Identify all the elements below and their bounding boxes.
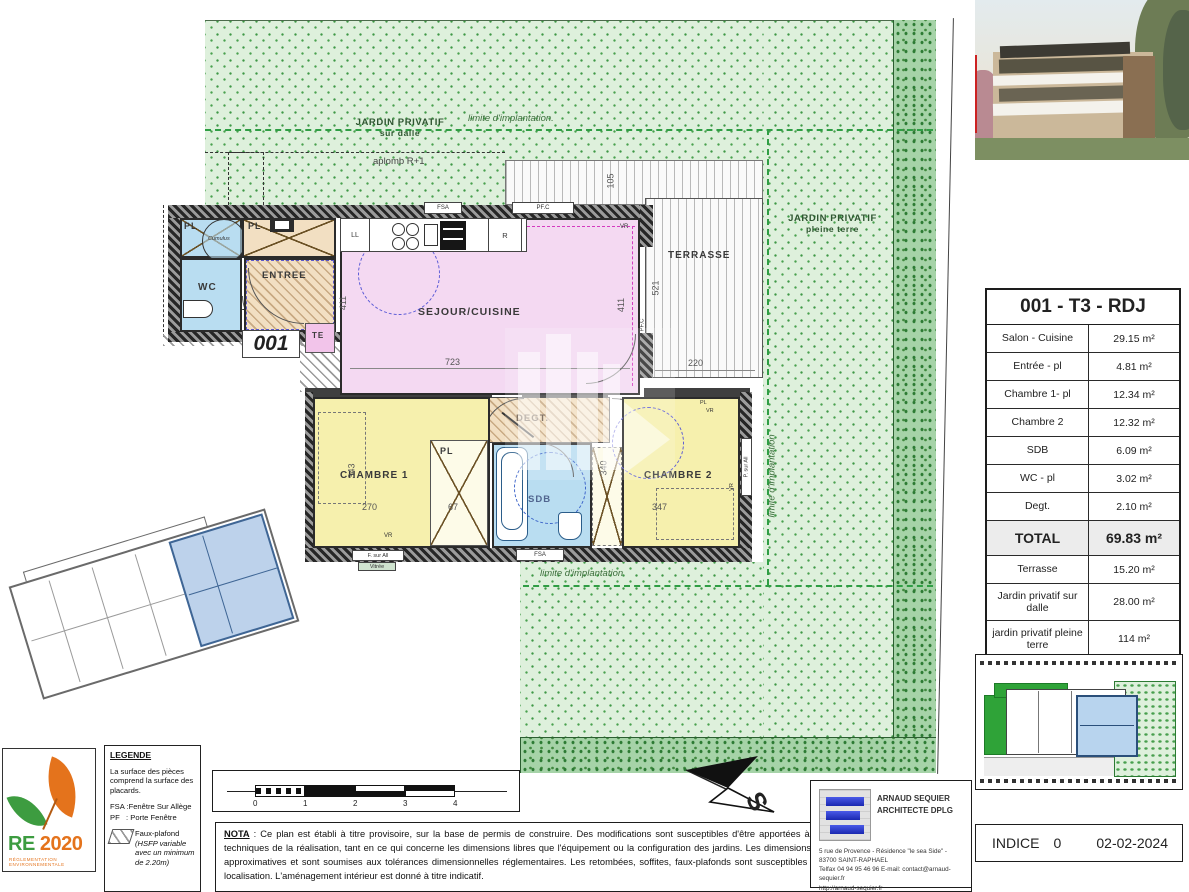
chambre1-bed [318,412,366,504]
kitchen-burner-2 [406,223,419,236]
niche-inner [275,221,289,229]
unit-number-box: 001 [242,330,300,358]
architect-name-line2: ARCHITECTE DPLG [877,805,953,817]
jardin-pleine-terre-label: JARDIN PRIVATIF pleine terre [775,213,890,234]
wc-label: WC [198,282,217,293]
unit-table-title: 001 - T3 - RDJ [987,290,1179,325]
site-boundary-line [937,18,954,774]
vr-chambre1-label: VR [384,533,392,539]
vr-east-label: VR [729,483,735,491]
dim-411b: 411 [616,298,626,312]
scale-tick-0: 0 [253,799,257,808]
architect-box: ARNAUD SEQUIER ARCHITECTE DPLG 5 rue de … [810,780,972,888]
sdb-wc [558,512,582,540]
legend-fsa: FSA :Fenêtre Sur Allège [110,802,195,811]
vr-top-label: VR [620,224,628,230]
chambre1-closet [430,440,488,546]
re2020-year: 2020 [40,833,83,855]
architect-address-line2: 83700 SAINT-RAPHAEL [819,856,969,865]
row-value: 29.15 m² [1089,325,1179,352]
keyplan-hatch-bottom [980,779,1176,783]
building-photo [975,0,1189,160]
kitchen-ll-box: LL [340,218,370,252]
row-value: 3.02 m² [1089,465,1179,492]
faux-plafond-swatch [108,829,135,844]
limite-top-label: limite d'implantation. [468,113,554,124]
watermark-bar-2 [546,334,571,470]
chambre2-bed [656,488,734,540]
dim-105: 105 [606,173,616,188]
scale-bar-seg-3 [405,785,455,797]
jardin-dalle-line1: JARDIN PRIVATIF [340,117,460,128]
scale-bar-seg-checker [255,785,305,797]
table-row: Salon - Cuisine29.15 m² [987,325,1179,353]
photo-wall-right [1123,56,1155,142]
floor-plan-sheet: JARDIN PRIVATIF sur dalle limite d'impla… [0,0,1189,892]
wall-west [168,218,180,332]
scale-bar-seg-2 [355,785,405,797]
site-key-plan [975,654,1183,790]
dim-723: 723 [445,357,460,367]
architect-name: ARNAUD SEQUIER ARCHITECTE DPLG [877,793,953,817]
architect-address: 5 rue de Provence - Résidence "le sea Si… [819,847,969,892]
axonometric-overview [9,508,300,699]
table-row: Chambre 1- pl12.34 m² [987,381,1179,409]
sdb-label: SDB [528,494,551,505]
photo-red-line [975,55,977,133]
terrasse-pier-top [640,205,653,247]
row-value: 12.32 m² [1089,409,1179,436]
row-label: Salon - Cuisine [987,325,1089,352]
photo-tree-right-2 [1163,10,1189,130]
table-row: Entrée - pl4.81 m² [987,353,1179,381]
legend-pf: PF : Porte Fenêtre [110,813,195,822]
architect-logo-bar-2 [826,811,860,820]
architect-logo-bar-3 [830,825,864,834]
architect-address-line1: 5 rue de Provence - Résidence "le sea Si… [819,847,969,856]
kitchen-sink [424,224,438,246]
dim-67: 67 [448,502,458,512]
scale-tick-2: 2 [353,799,357,808]
watermark-bar-1 [518,352,540,470]
dim-343: 343 [347,463,357,478]
pl2-label: PL [248,221,262,231]
kitchen-oven-line2 [443,238,463,240]
sejour-label: SEJOUR/CUISINE [418,306,521,318]
row-label: Chambre 2 [987,409,1089,436]
garden-bottom-band [520,562,763,737]
window-fsa-bottom: FSA [516,549,564,561]
jardin-terre-line1: JARDIN PRIVATIF [775,213,890,224]
row-value: 12.34 m² [1089,381,1179,408]
scale-tick-4: 4 [453,799,457,808]
architect-address-line4: http://arnaud-sequier.fr [819,884,969,892]
dim-270: 270 [362,502,377,512]
p-sur-all-label: P. sur All [744,457,750,478]
row-value: 2.10 m² [1089,493,1179,520]
kitchen-oven-line1 [443,228,463,230]
f-sur-all-label: F. sur All [368,553,389,559]
table-row: WC - pl3.02 m² [987,465,1179,493]
limite-right-label: limite d'implantation [767,418,778,518]
hedge-right [893,20,936,772]
legend-faux-plafond: Faux-plafond [135,829,179,838]
nota-label: NOTA [224,829,250,839]
sejour-dashed-pink-top [527,226,635,227]
re2020-leaf-orange [36,756,88,817]
scale-tick-1: 1 [303,799,307,808]
unit-number: 001 [253,332,288,356]
architect-name-line1: ARNAUD SEQUIER [877,793,953,805]
fsa-top-label: FSA [437,205,449,211]
watermark-bar-3 [577,352,598,470]
wc-toilet [183,300,213,318]
row-value: 6.09 m² [1089,437,1179,464]
legend-box: LEGENDE La surface des pièces comprend l… [104,745,201,892]
limite-bottom-label: limite d'implantation [540,568,623,579]
legend-faux-note: (HSFP variable avec un minimum de 2.20m) [135,839,195,867]
row-label: WC - pl [987,465,1089,492]
row-label: Chambre 1- pl [987,381,1089,408]
te-label: TE [312,331,324,340]
kitchen-burner-3 [392,237,405,250]
window-p-sur-all: P. sur All [741,438,752,496]
architect-logo [819,789,871,841]
re2020-box: RE 2020 RÉGLEMENTATION ENVIRONNEMENTALE [2,748,96,872]
property-dashdot-line [163,205,164,337]
table-row: Jardin privatif sur dalle28.00 m² [987,584,1179,621]
table-row: jardin privatif pleine terre114 m² [987,621,1179,657]
revision-label: INDICE [992,835,1039,851]
row-value: 15.20 m² [1089,556,1179,583]
kitchen-oven [440,221,466,250]
table-row: SDB6.09 m² [987,437,1179,465]
ll-label: LL [351,232,359,239]
watermark-bar-4 [603,364,620,470]
aplomb-label: aplomb R+1 [373,156,425,167]
row-label: Degt. [987,493,1089,520]
row-label: TOTAL [987,521,1089,555]
window-vitree: Vitrée [358,562,396,571]
room-wc [180,258,242,332]
row-label: SDB [987,437,1089,464]
wall-chambre-west [305,392,313,548]
terrasse-label: TERRASSE [668,250,730,261]
kitchen-burner-1 [392,223,405,236]
keyplan-hatch-top [980,661,1176,665]
dim-220: 220 [688,358,703,368]
kitchen-fridge-box: R [488,218,522,252]
limite-implantation-bottom-line [523,585,933,587]
row-value: 69.83 m² [1089,521,1179,555]
scale-bar-box: 0 1 2 3 4 [212,770,520,812]
scale-bar-seg-1 [305,785,355,797]
row-value: 114 m² [1089,621,1179,657]
table-row: Degt.2.10 m² [987,493,1179,521]
re2020-wordmark: RE 2020 [8,833,94,856]
table-row: Chambre 212.32 m² [987,409,1179,437]
legend-surface-note: La surface des pièces comprend la surfac… [110,767,195,795]
table-row: Terrasse15.20 m² [987,556,1179,584]
re2020-stem [42,798,58,830]
architect-address-line3: Telfax 04 94 95 46 96 E-mail: contact@ar… [819,865,969,883]
keyplan-road [984,757,1114,776]
limite-implantation-top-line [205,129,933,131]
table-row-total: TOTAL69.83 m² [987,521,1179,556]
re2020-leaf-green [7,787,48,835]
keyplan-building-line-2 [1071,691,1072,753]
dim-411a: 411 [338,296,348,310]
window-f-sur-all: F. sur All [352,550,404,561]
dim-347: 347 [652,502,667,512]
row-label: jardin privatif pleine terre [987,621,1089,657]
legend-title: LEGENDE [110,750,195,761]
re2020-caption: RÉGLEMENTATION ENVIRONNEMENTALE [9,857,95,867]
scale-tick-3: 3 [403,799,407,808]
dim-521: 521 [651,280,661,295]
cumulus-label: Cumulus [208,236,230,242]
window-pfc-top: PF.C [512,202,574,214]
row-label: Jardin privatif sur dalle [987,584,1089,620]
photo-ground [975,138,1189,160]
kitchen-burner-4 [406,237,419,250]
vr-chambre2-label: VR [706,408,714,414]
pfc-top-label: PF.C [536,205,549,211]
keyplan-building-line-1 [1038,691,1039,753]
fsa-bottom-label: FSA [534,552,546,558]
revision-date: 02-02-2024 [1096,835,1168,851]
row-label: Entrée - pl [987,353,1089,380]
row-value: 28.00 m² [1089,584,1179,620]
revision-box: INDICE 0 02-02-2024 [975,824,1183,862]
vitree-label: Vitrée [370,564,384,570]
jardin-dalle-line2: sur dalle [340,128,460,138]
pl-chambre2-label: PL [700,400,707,406]
row-value: 4.81 m² [1089,353,1179,380]
window-fsa-top: FSA [424,202,462,214]
jardin-terre-line2: pleine terre [775,224,890,234]
keyplan-unit-highlight [1076,695,1138,757]
fridge-label: R [502,231,507,240]
architect-logo-bar-1 [826,797,864,806]
pl3-label: PL [440,446,454,456]
pl1-label: PL [184,221,198,231]
re2020-re: RE [8,833,35,855]
keyplan-unit-line [1080,725,1134,726]
unit-area-table: 001 - T3 - RDJ Salon - Cuisine29.15 m² E… [985,288,1181,659]
jardin-sur-dalle-label: JARDIN PRIVATIF sur dalle [340,117,460,138]
revision-value: 0 [1053,835,1061,851]
row-label: Terrasse [987,556,1089,583]
